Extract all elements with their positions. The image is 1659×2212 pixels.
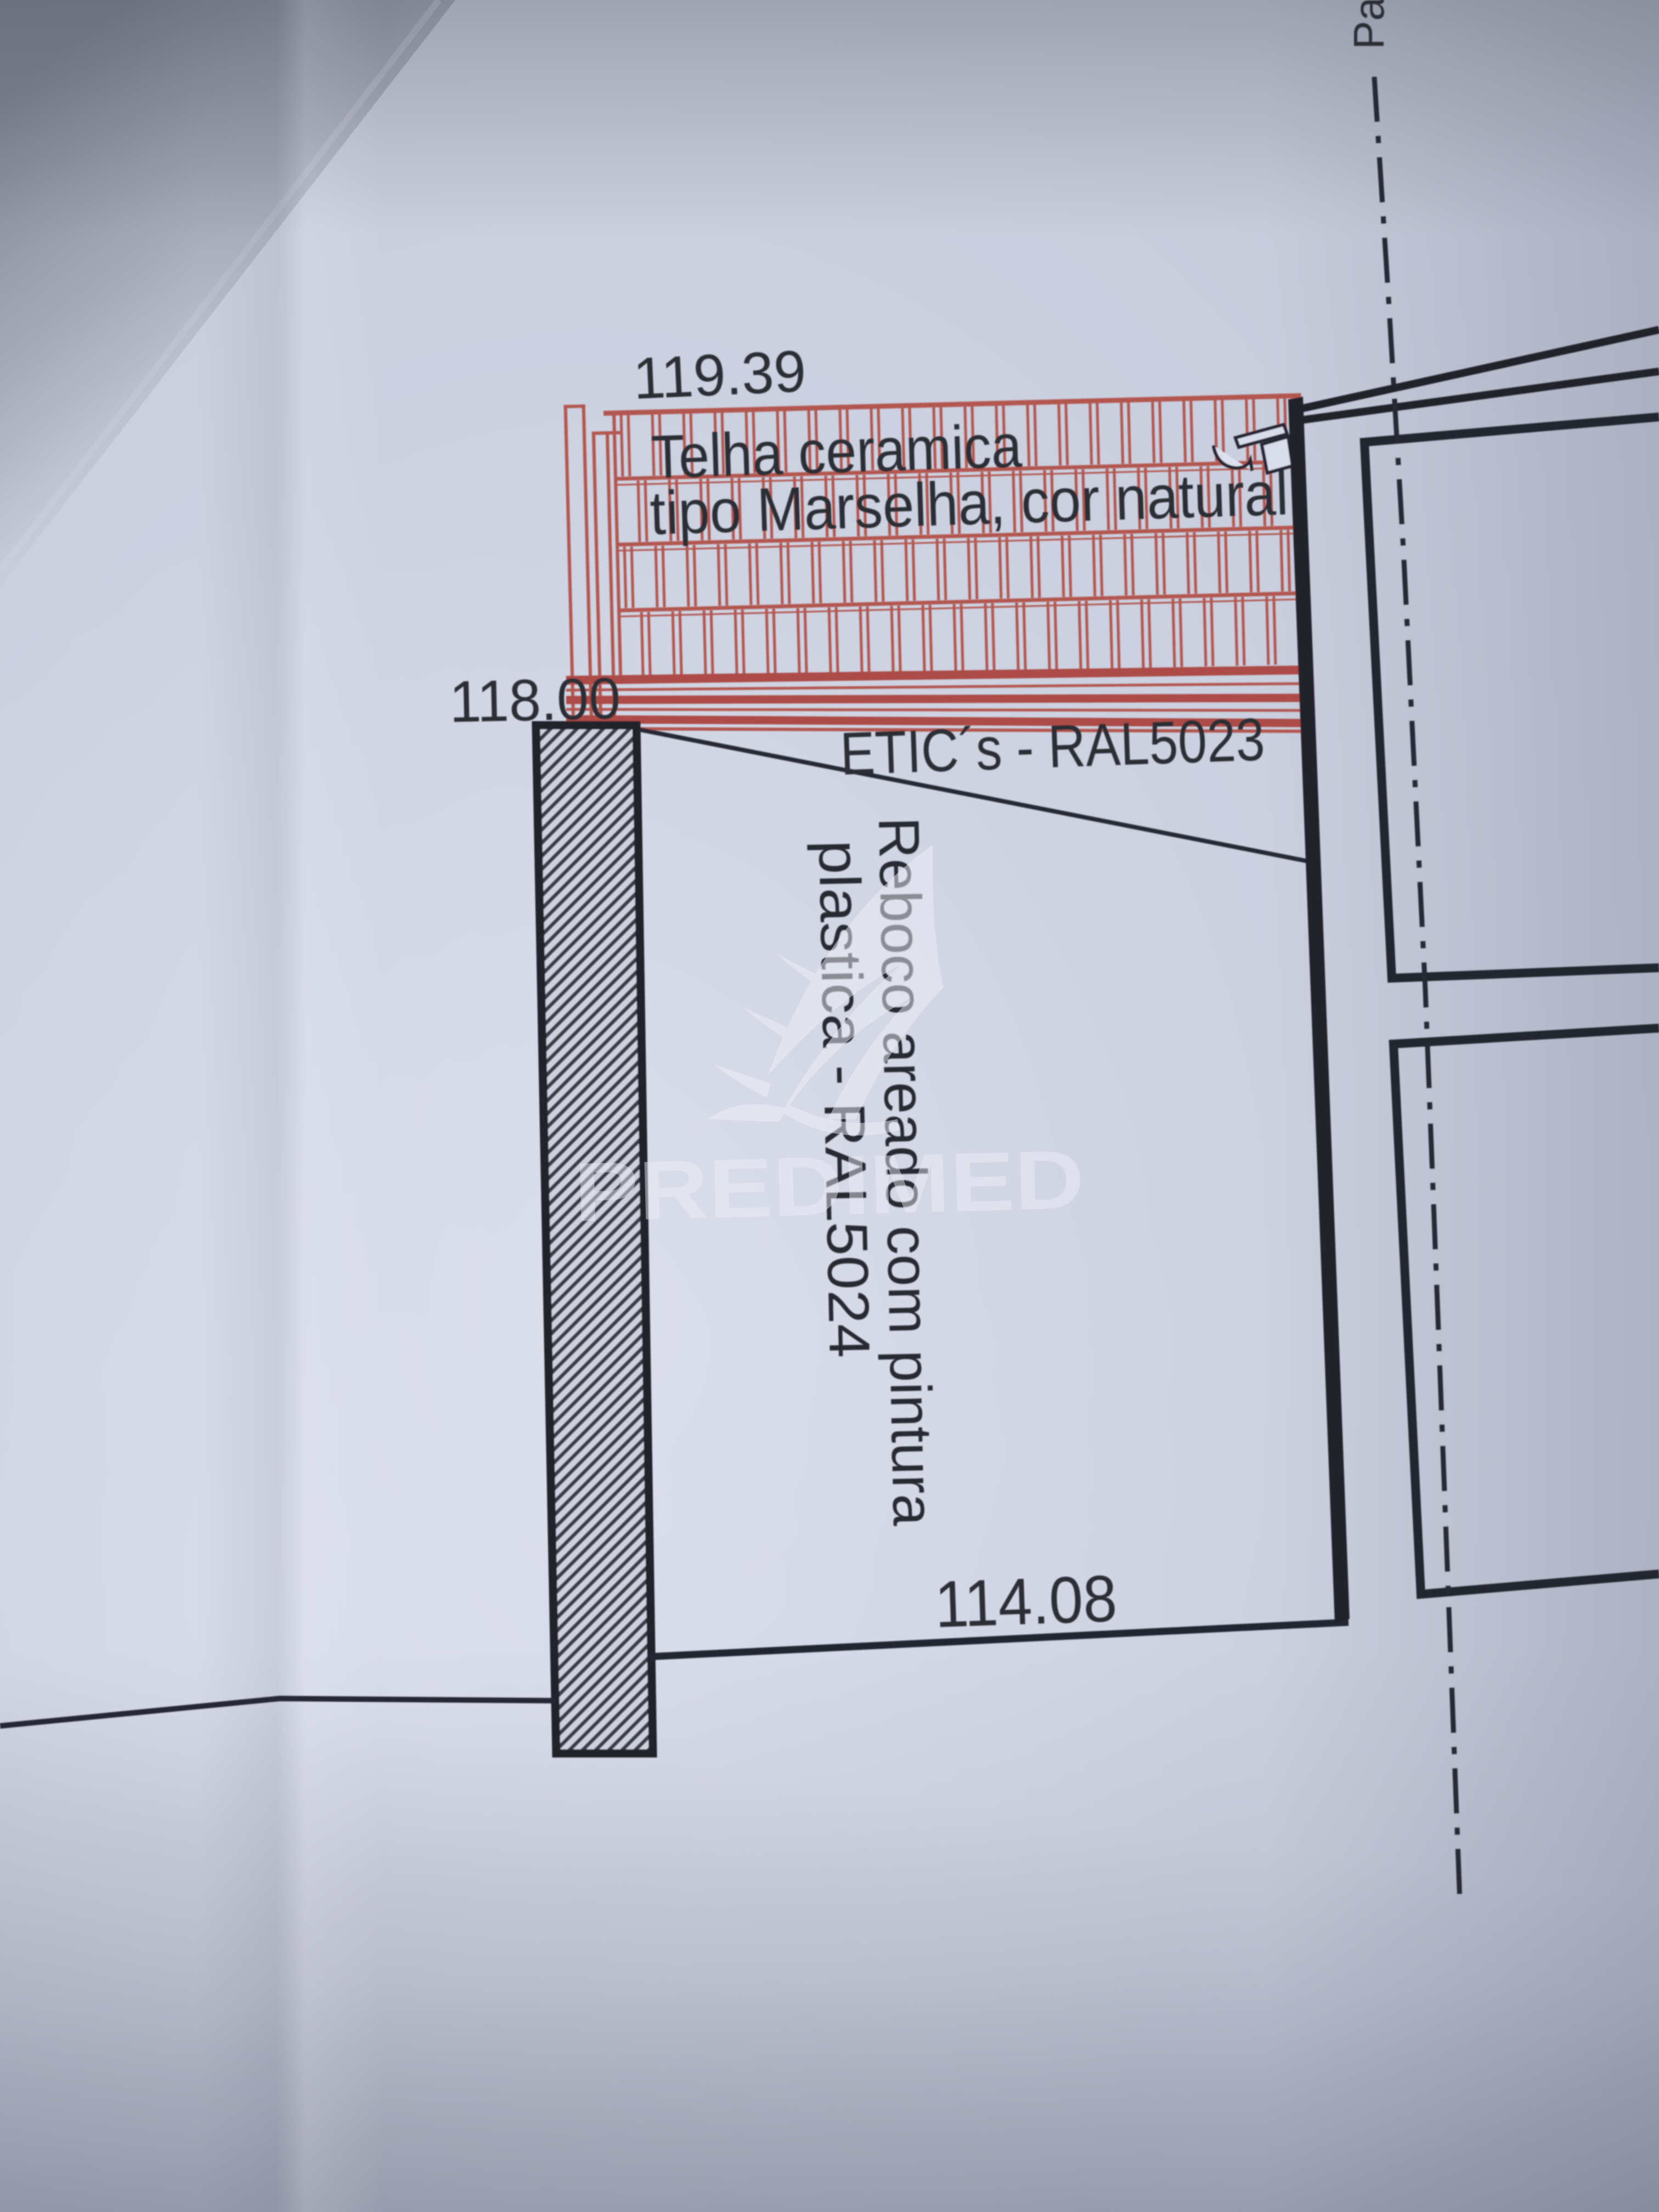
svg-text:119.39: 119.39	[632, 338, 808, 411]
svg-text:Pa: Pa	[1345, 0, 1393, 49]
svg-text:118.00: 118.00	[449, 665, 621, 735]
svg-text:114.08: 114.08	[934, 1561, 1118, 1641]
svg-text:PREDIMED: PREDIMED	[573, 1133, 1085, 1239]
